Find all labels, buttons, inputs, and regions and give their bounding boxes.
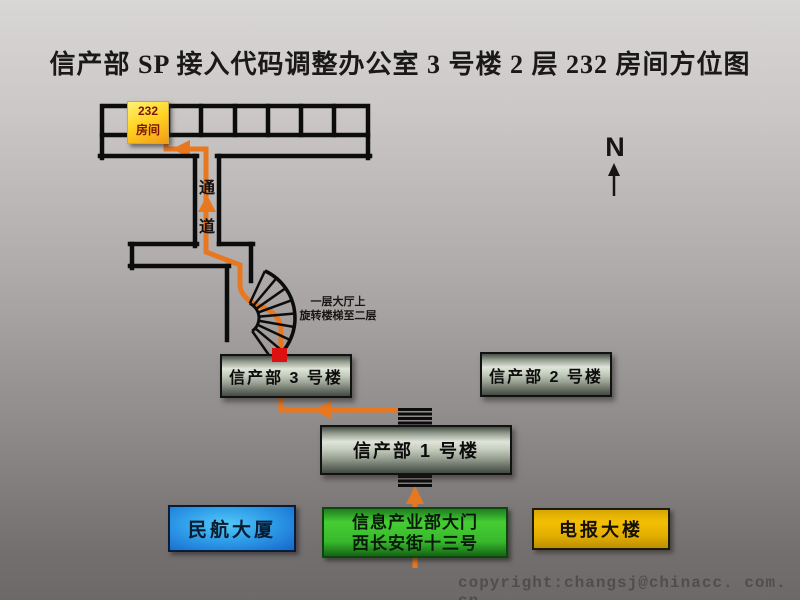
copyright-watermark: copyright:changsj@chinacc. com. cn: [458, 574, 800, 600]
building-1-label: 信产部 1 号楼: [353, 437, 479, 463]
telegraph-building-label: 电报大楼: [559, 516, 643, 542]
room-number: 232: [128, 102, 168, 121]
arrow-left-to-building3: [313, 401, 331, 419]
caac-building-label: 民航大厦: [188, 515, 276, 542]
caac-building-box: 民航大厦: [168, 505, 296, 552]
room-232-badge: 232 房间: [127, 101, 169, 144]
compass-north-label: N: [598, 132, 632, 163]
building-2-label: 信产部 2 号楼: [489, 363, 603, 387]
room-label: 房间: [128, 121, 168, 140]
building-3-label: 信产部 3 号楼: [229, 364, 343, 388]
door-hatch-top: [398, 408, 432, 425]
location-map: 信产部 SP 接入代码调整办公室 3 号楼 2 层 232 房间方位图: [0, 0, 800, 600]
corridor-label-char2: 道: [197, 213, 217, 237]
ministry-gate-box: 信息产业部大门 西长安街十三号: [322, 507, 508, 558]
stair-note-line2: 旋转楼梯至二层: [290, 309, 386, 323]
stair-note-line1: 一层大厅上: [290, 295, 386, 309]
building-2-box: 信产部 2 号楼: [480, 352, 612, 397]
corridor-label-char1: 通: [197, 174, 217, 198]
building-1-box: 信产部 1 号楼: [320, 425, 512, 475]
door-hatch-bottom: [398, 475, 432, 487]
route-path: [166, 136, 415, 568]
gate-label-line2: 西长安街十三号: [352, 533, 478, 554]
stair-note: 一层大厅上 旋转楼梯至二层: [290, 295, 386, 323]
building-3-entrance-marker: [272, 348, 287, 362]
north-arrow-icon: [608, 163, 620, 196]
telegraph-building-box: 电报大楼: [532, 508, 670, 550]
gate-label-line1: 信息产业部大门: [352, 512, 478, 533]
arrow-up-gate: [406, 486, 424, 504]
